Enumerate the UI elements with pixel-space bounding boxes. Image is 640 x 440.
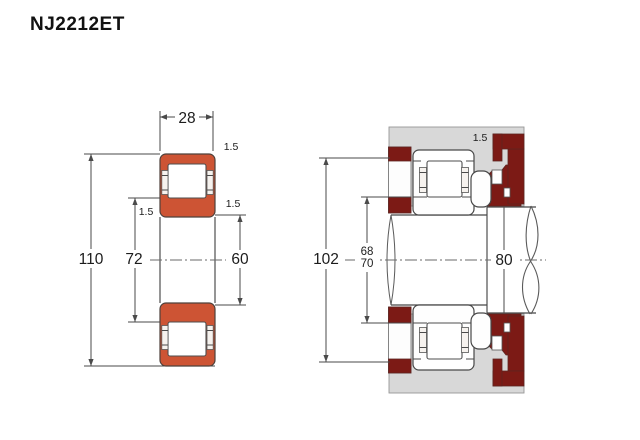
mounted-roller-bottom bbox=[427, 323, 462, 359]
left-view-cross-section: 28 110 72 bbox=[74, 107, 254, 366]
dim-shaft-abutment-max-label: 70 bbox=[361, 258, 374, 270]
inner-ring-flange-bottom bbox=[471, 313, 491, 349]
bearing-drawing-canvas: 28 110 72 bbox=[0, 0, 640, 440]
collar-notch-top bbox=[504, 188, 510, 197]
dim-inner-race-label: 72 bbox=[125, 251, 142, 268]
dim-shaft-diameter-label: 80 bbox=[495, 252, 513, 269]
technical-drawing-page: NJ2212ET 28 110 bbox=[0, 0, 640, 440]
shaft-shoulder-top-left bbox=[389, 197, 412, 213]
cage-bottom-right bbox=[207, 326, 213, 350]
chamfer-flange-label: 1.5 bbox=[226, 198, 241, 210]
housing-shoulder-top bbox=[389, 147, 412, 161]
left-abutment-bottom bbox=[389, 307, 412, 373]
dim-width: 28 bbox=[160, 107, 213, 151]
housing-shoulder-bottom bbox=[389, 359, 412, 373]
dim-shaft-diameter: 80 bbox=[491, 207, 517, 313]
page-title: NJ2212ET bbox=[30, 14, 125, 36]
cage-top-left bbox=[162, 171, 168, 195]
roller-bottom bbox=[168, 322, 206, 356]
mounted-cage-top-left bbox=[420, 168, 427, 193]
cage-bottom-left bbox=[162, 326, 168, 350]
mounted-cage-top-right bbox=[462, 168, 469, 193]
left-abutment-top bbox=[389, 147, 412, 213]
collar-slot-top bbox=[492, 170, 502, 184]
shaft-shoulder-bottom-left bbox=[389, 307, 412, 323]
dim-outer-diameter-label: 110 bbox=[79, 251, 104, 268]
mounted-cage-bottom-left bbox=[420, 328, 427, 353]
dim-housing-abutment-label: 102 bbox=[313, 251, 339, 268]
chamfer-inner-label: 1.5 bbox=[139, 206, 154, 218]
right-view-mounted-section: 102 68 70 80 1.5 bbox=[307, 127, 546, 393]
dim-flange-label: 60 bbox=[231, 251, 249, 268]
cage-top-right bbox=[207, 171, 213, 195]
collar-notch-bottom bbox=[504, 323, 510, 332]
dim-shaft-abutment: 68 70 bbox=[355, 197, 411, 323]
dim-shaft-abutment-min-label: 68 bbox=[361, 246, 374, 258]
roller-top bbox=[168, 164, 206, 198]
chamfer-outer-label: 1.5 bbox=[224, 141, 239, 153]
collar-hook-bottom bbox=[493, 359, 502, 386]
collar-slot-bottom bbox=[492, 336, 502, 350]
mounted-roller-top bbox=[427, 161, 462, 197]
mounted-cage-bottom-right bbox=[462, 328, 469, 353]
inner-ring-flange-top bbox=[471, 171, 491, 207]
bearing-section-body bbox=[150, 154, 226, 366]
collar-hook-top bbox=[493, 134, 502, 161]
dim-width-label: 28 bbox=[178, 110, 195, 127]
fillet-radius-label: 1.5 bbox=[473, 132, 488, 144]
